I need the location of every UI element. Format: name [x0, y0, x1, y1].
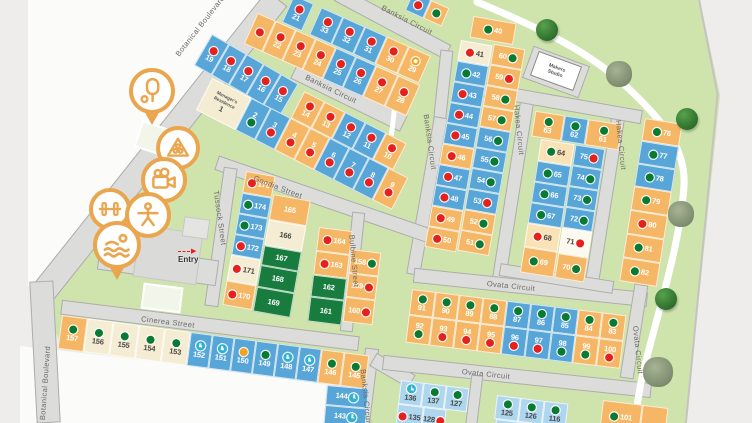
entry-dashed-line	[178, 251, 190, 252]
lot-number: 148	[280, 362, 293, 371]
green-dot	[430, 387, 439, 396]
lot-84[interactable]: 84	[576, 309, 603, 338]
lot-number: 160	[348, 306, 361, 315]
lot-number: 5	[310, 141, 317, 149]
red-dot	[236, 241, 245, 250]
lot-number: 58	[491, 93, 500, 102]
tree-icon	[536, 19, 558, 41]
lot-number: 42	[472, 70, 481, 79]
red-dot	[232, 264, 241, 273]
green-dot	[537, 210, 546, 219]
red-dot	[444, 172, 453, 181]
lot-number: 82	[640, 269, 649, 278]
lot-number: 83	[608, 327, 617, 335]
lot-number: 167	[275, 254, 288, 263]
green-dot	[367, 259, 376, 268]
lot-number: 93	[439, 324, 448, 332]
lot-88[interactable]: 88	[480, 298, 507, 327]
lot-number: 94	[463, 327, 472, 335]
lot-number: 65	[553, 170, 562, 179]
lot-number: 52	[469, 217, 478, 226]
lot-number: 153	[169, 347, 182, 356]
green-dot	[504, 400, 513, 409]
green-dot	[327, 359, 336, 368]
lot-number: 80	[648, 221, 657, 230]
lot-number: 161	[319, 307, 332, 316]
lot-number: 128	[423, 415, 436, 423]
lot-number: 44	[464, 112, 473, 121]
lot-number: 86	[536, 318, 545, 326]
clock-dot	[347, 412, 357, 422]
lot-number: 173	[250, 222, 263, 231]
lot-number: 50	[442, 236, 451, 245]
red-dot	[533, 232, 542, 241]
lot-number: 116	[548, 414, 560, 423]
green-dot	[431, 8, 442, 19]
lot-137[interactable]: 137	[421, 383, 447, 410]
red-dot	[362, 307, 371, 316]
lot-number: 169	[267, 298, 280, 307]
red-dot	[320, 259, 329, 268]
green-dot	[261, 350, 270, 359]
lot-number: 62	[570, 130, 579, 139]
swimming-pin[interactable]	[93, 221, 141, 269]
clock-dot	[406, 384, 416, 394]
red-dot	[436, 417, 445, 423]
red-dot	[465, 48, 474, 57]
lot-number: 72	[569, 214, 578, 223]
lot-number: 84	[584, 324, 593, 332]
lot-number: 47	[453, 174, 462, 183]
lot-number: 152	[193, 351, 206, 360]
lot-70[interactable]: 70	[554, 253, 588, 282]
lot-number: 154	[143, 344, 156, 353]
lot-number: 166	[279, 231, 292, 240]
lot-number: 6	[330, 151, 337, 159]
lot-number: 165	[283, 205, 296, 214]
lot-91[interactable]: 91	[409, 289, 436, 318]
lot-number: 71	[566, 238, 575, 247]
lot-143[interactable]: 143	[324, 405, 368, 423]
tree-icon	[676, 108, 698, 130]
lot-number: 7	[350, 161, 357, 169]
green-dot	[579, 216, 588, 225]
lot-number: 49	[446, 215, 455, 224]
lot-number: 150	[236, 356, 249, 365]
green-dot	[547, 147, 556, 156]
green-dot	[527, 403, 536, 412]
lot-number: 73	[573, 194, 582, 203]
lot-number: 170	[238, 291, 251, 300]
lot-number: 89	[465, 309, 474, 317]
lot-number: 100	[604, 345, 617, 354]
lot-92[interactable]: 92	[405, 315, 432, 346]
green-dot	[490, 303, 499, 312]
red-dot	[483, 198, 492, 207]
lot-number: 59	[495, 72, 504, 81]
lot-number: 85	[560, 321, 569, 329]
lot-136[interactable]: 136	[398, 380, 424, 407]
lot-100[interactable]: 100	[596, 338, 623, 369]
red-dot	[605, 353, 614, 362]
lot-85[interactable]: 85	[552, 307, 579, 336]
lot-86[interactable]: 86	[528, 304, 555, 333]
lot-number: 97	[534, 336, 543, 344]
green-dot	[146, 335, 155, 344]
lot-number: 8	[369, 171, 376, 179]
shrub-icon	[606, 61, 632, 87]
green-dot	[600, 126, 609, 135]
green-dot	[609, 318, 618, 327]
lot-number: 127	[450, 399, 463, 408]
red-dot	[462, 336, 471, 345]
green-dot	[642, 196, 651, 205]
lot-number: 55	[480, 155, 489, 164]
lot-number: 162	[322, 283, 335, 292]
lot-number: 41	[475, 50, 484, 59]
lot-number: 98	[558, 339, 567, 347]
green-dot	[479, 219, 488, 228]
green-dot	[490, 157, 499, 166]
lot-number: 79	[652, 197, 661, 206]
swimming-icon	[93, 221, 141, 269]
lot-number: 64	[556, 149, 565, 158]
lot-number: 96	[510, 333, 519, 341]
lot-number: 172	[246, 243, 259, 252]
red-dot	[323, 236, 332, 245]
lot-number: 88	[489, 312, 498, 320]
lot-number: 77	[659, 152, 668, 161]
lot-number: 125	[501, 408, 514, 417]
lot-number: 70	[562, 263, 571, 272]
lot-99[interactable]: 99	[572, 335, 599, 366]
lot-number: 174	[254, 202, 267, 211]
green-dot	[475, 239, 484, 248]
lot-87[interactable]: 87	[504, 301, 531, 330]
green-dot	[120, 332, 129, 341]
red-dot	[255, 27, 266, 38]
green-dot	[493, 136, 502, 145]
lot-89[interactable]: 89	[456, 295, 483, 324]
lot-number: 66	[550, 191, 559, 200]
red-dot	[486, 339, 495, 348]
lot-number: 3	[271, 121, 278, 129]
red-dot	[533, 345, 542, 354]
lot-number: 147	[302, 365, 315, 374]
green-dot	[69, 325, 78, 334]
lot-number: 87	[513, 315, 522, 323]
green-dot	[442, 298, 451, 307]
green-dot	[610, 412, 619, 421]
lot-number: 163	[330, 261, 343, 270]
tree-icon	[655, 288, 677, 310]
lot-number: 9	[389, 181, 396, 189]
lot-number: 168	[271, 274, 284, 283]
amber-dot	[239, 347, 248, 356]
red-dot	[576, 239, 585, 248]
green-dot	[543, 168, 552, 177]
lot-number: 68	[543, 234, 552, 243]
green-dot	[418, 295, 427, 304]
green-dot	[586, 174, 595, 183]
lot-170[interactable]: 170	[222, 280, 256, 310]
lot-number: 75	[579, 152, 588, 161]
lot-number: 135	[408, 413, 421, 422]
green-dot	[581, 350, 590, 359]
lot-number: 2	[252, 111, 259, 119]
green-dot	[630, 267, 639, 276]
lot-128[interactable]: 128	[421, 407, 447, 423]
lot-160[interactable]: 160	[343, 297, 376, 325]
lot-number: 45	[461, 132, 470, 141]
lot-97[interactable]: 97	[525, 329, 552, 360]
red-dot	[228, 289, 237, 298]
red-dot	[438, 333, 447, 342]
lot-96[interactable]: 96	[501, 327, 528, 358]
green-dot	[544, 117, 553, 126]
green-dot	[240, 220, 249, 229]
red-dot	[589, 153, 598, 162]
lot-101[interactable]: 101	[599, 400, 642, 423]
lot-number: 126	[524, 411, 537, 420]
lot-number: 149	[258, 359, 271, 368]
red-dot	[413, 0, 424, 10]
lot-135[interactable]: 135	[395, 404, 424, 423]
lot-93[interactable]: 93	[429, 318, 456, 349]
green-dot	[551, 406, 560, 415]
green-dot	[561, 312, 570, 321]
lot-number: 63	[543, 126, 552, 135]
entry-arrow-icon: ▶	[191, 248, 196, 255]
lot-number: 146	[324, 368, 337, 377]
lot-number: 136	[404, 394, 417, 403]
red-dot	[509, 342, 518, 351]
masterplan-map: 1918171615213332313029222324252627281413…	[0, 0, 752, 423]
lot-161[interactable]: 161	[307, 296, 344, 325]
green-dot	[645, 172, 654, 181]
lot-number: 171	[242, 266, 255, 275]
green-dot	[652, 127, 661, 136]
green-dot	[453, 390, 462, 399]
lot-number: 156	[91, 337, 104, 346]
green-dot	[172, 338, 181, 347]
lot-127[interactable]: 127	[444, 386, 470, 413]
lot-number: 4	[291, 131, 298, 139]
lot-116[interactable]: 116	[542, 401, 569, 423]
lot-94[interactable]: 94	[453, 321, 480, 352]
red-dot	[440, 192, 449, 201]
red-dot	[458, 89, 467, 98]
green-dot	[557, 347, 566, 356]
entry-marker: ▶Entry	[178, 248, 198, 264]
lot-number: 56	[484, 134, 493, 143]
shrub-icon	[643, 357, 673, 387]
green-dot	[466, 301, 475, 310]
lot-number: 40	[493, 27, 502, 36]
red-dot	[451, 130, 460, 139]
green-dot	[514, 306, 523, 315]
shrub-icon	[668, 201, 694, 227]
lot-number: 90	[441, 307, 450, 315]
lot-number: 46	[457, 153, 466, 162]
lot-number: 157	[66, 334, 79, 343]
red-dot	[454, 110, 463, 119]
lot-number: 78	[655, 174, 664, 183]
red-dot	[433, 234, 442, 243]
lot-number: 51	[465, 238, 474, 247]
green-dot	[634, 243, 643, 252]
lot-90[interactable]: 90	[433, 292, 460, 321]
red-dot	[447, 151, 456, 160]
lot-number: 76	[662, 129, 671, 138]
pickleball-icon	[129, 68, 175, 114]
green-dot	[501, 94, 510, 103]
entry-label: Entry	[178, 255, 198, 264]
lot-number: 81	[644, 245, 653, 254]
lot-126[interactable]: 126	[518, 398, 545, 423]
green-dot	[537, 309, 546, 318]
lot-number: 143	[334, 412, 347, 421]
green-dot	[540, 189, 549, 198]
lot-125[interactable]: 125	[494, 395, 521, 422]
lot-partial	[639, 405, 668, 423]
green-dot	[572, 264, 581, 273]
green-dot	[649, 150, 658, 159]
red-dot	[436, 213, 445, 222]
red-dot	[364, 283, 373, 292]
lot-number: 57	[487, 114, 496, 123]
lot-number: 61	[598, 135, 607, 144]
lot-69[interactable]: 69	[520, 247, 558, 278]
lot-number: 151	[214, 354, 227, 363]
lot-63[interactable]: 63	[531, 111, 565, 141]
green-dot	[508, 53, 517, 62]
green-dot	[497, 115, 506, 124]
green-dot	[95, 328, 104, 337]
red-dot	[504, 74, 513, 83]
lot-number: 92	[415, 321, 424, 329]
lot-number: 91	[417, 304, 426, 312]
lot-number: 137	[427, 396, 440, 405]
green-dot	[583, 195, 592, 204]
lot-95[interactable]: 95	[477, 324, 504, 355]
lot-number: 155	[117, 340, 130, 349]
green-dot	[414, 330, 423, 339]
pickleball-pin[interactable]	[129, 68, 175, 114]
green-dot	[571, 121, 580, 130]
green-dot	[529, 257, 538, 266]
lot-number: 69	[539, 259, 548, 268]
lot-number: 48	[450, 194, 459, 203]
lot-number: 54	[476, 176, 485, 185]
green-dot	[244, 200, 253, 209]
red-dot	[398, 412, 407, 421]
lot-number: 43	[468, 91, 477, 100]
green-dot	[585, 315, 594, 324]
green-dot	[486, 177, 495, 186]
clock-dot	[349, 393, 359, 403]
lot-number: 101	[620, 413, 633, 422]
lot-number: 99	[582, 342, 591, 350]
lot-number: 74	[576, 173, 585, 182]
lot-number: 144	[335, 392, 348, 401]
lot-number: 1	[218, 105, 225, 113]
lot-number: 95	[487, 330, 496, 338]
green-dot	[462, 68, 471, 77]
lot-83[interactable]: 83	[599, 312, 626, 341]
lot-98[interactable]: 98	[548, 332, 575, 363]
lot-number: 164	[333, 237, 346, 246]
green-dot	[484, 25, 493, 34]
lot-number: 67	[547, 212, 556, 221]
red-dot	[638, 219, 647, 228]
lot-number: 53	[473, 196, 482, 205]
lot-number: 60	[498, 52, 507, 61]
